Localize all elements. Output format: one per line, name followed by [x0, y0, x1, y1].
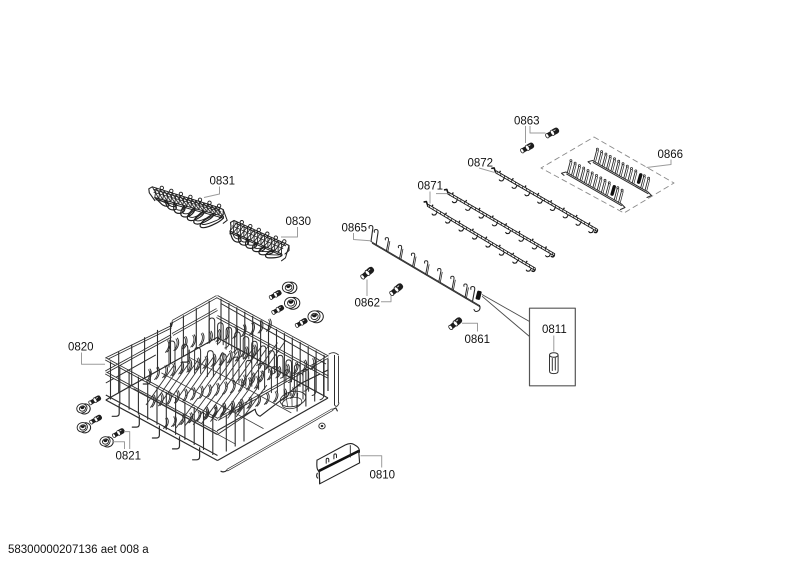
svg-text:0863: 0863	[514, 116, 540, 128]
svg-text:0821: 0821	[116, 451, 142, 463]
svg-text:0861: 0861	[465, 334, 491, 346]
svg-text:58300000207136 aet 008 a: 58300000207136 aet 008 a	[8, 544, 149, 556]
svg-text:0871: 0871	[418, 181, 444, 193]
svg-text:0820: 0820	[68, 342, 94, 354]
svg-text:0831: 0831	[210, 176, 236, 188]
svg-text:0872: 0872	[468, 158, 494, 170]
svg-text:0865: 0865	[342, 223, 368, 235]
svg-text:0810: 0810	[370, 470, 396, 482]
svg-text:0862: 0862	[355, 298, 381, 310]
svg-text:0866: 0866	[658, 149, 684, 161]
svg-text:0830: 0830	[286, 216, 312, 228]
svg-text:0811: 0811	[542, 324, 567, 336]
